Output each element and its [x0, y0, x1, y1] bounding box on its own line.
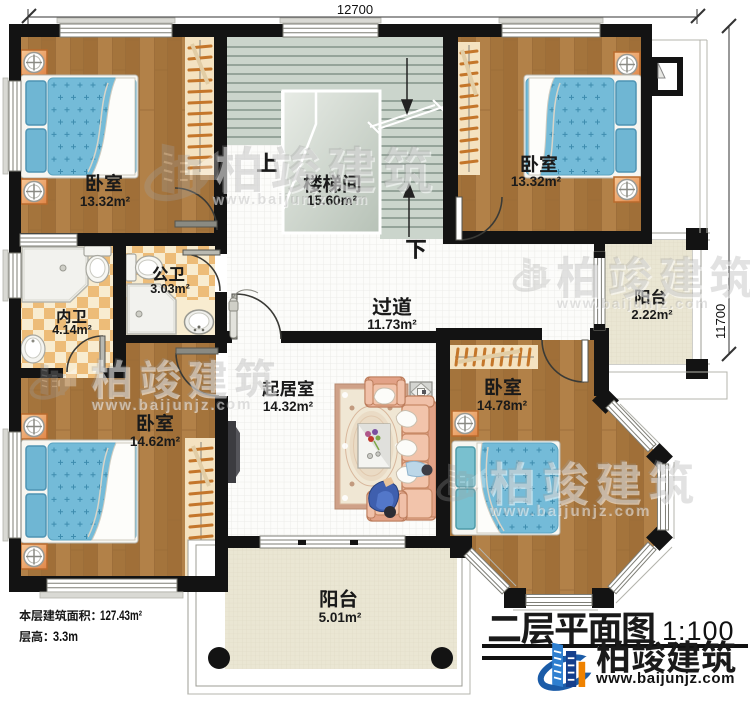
svg-text:11.73m²: 11.73m²	[367, 317, 417, 332]
svg-text:www.baijunjz.com: www.baijunjz.com	[556, 295, 710, 311]
svg-text:13.32m²: 13.32m²	[511, 174, 562, 189]
svg-text:12700: 12700	[337, 2, 373, 17]
svg-text:14.78m²: 14.78m²	[477, 398, 528, 413]
svg-text:3.03m²: 3.03m²	[150, 282, 190, 296]
svg-text:14.62m²: 14.62m²	[130, 434, 181, 449]
svg-text:127.43m²: 127.43m²	[100, 607, 142, 623]
svg-text:5.01m²: 5.01m²	[319, 610, 362, 625]
svg-text:www.baijunjz.com: www.baijunjz.com	[211, 192, 369, 208]
svg-text:13.32m²: 13.32m²	[80, 194, 131, 209]
svg-text:www.baijunjz.com: www.baijunjz.com	[488, 502, 650, 519]
svg-text:www.baijunjz.com: www.baijunjz.com	[595, 670, 735, 687]
svg-text:www.baijunjz.com: www.baijunjz.com	[90, 396, 252, 413]
svg-text:4.14m²: 4.14m²	[52, 323, 92, 337]
svg-text:11700: 11700	[713, 304, 728, 339]
svg-text:3.3m: 3.3m	[53, 628, 78, 644]
svg-text:14.32m²: 14.32m²	[263, 399, 314, 414]
